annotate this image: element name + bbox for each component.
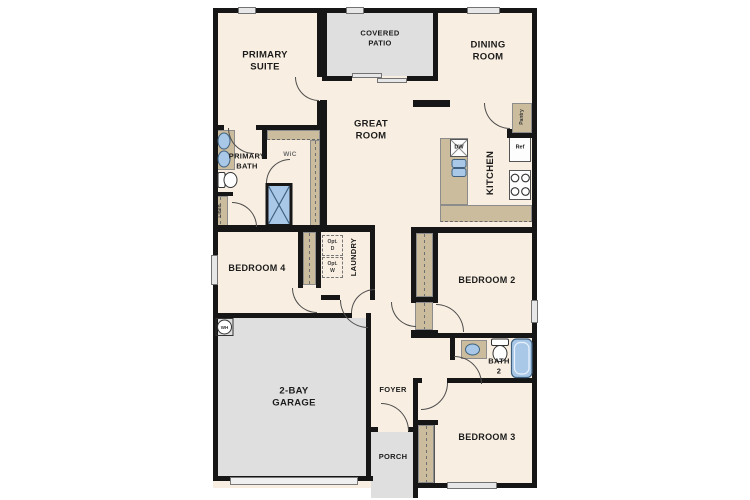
wall [411,227,537,233]
bath2-vanity [461,340,487,359]
room-label-wic: WiC [283,151,296,159]
bedroom4-closet [303,232,316,285]
wic-shelf-side [310,140,320,227]
porch-area [371,432,413,498]
floor-plan: Opt. D Opt. W [0,0,750,500]
range-box [509,170,531,200]
room-label-bedroom-2: BEDROOM 2 [458,275,515,287]
hall-closet [415,302,433,330]
window [531,300,538,323]
optional-dryer-box: Opt. D [322,235,343,256]
bedroom2-closet [416,233,433,297]
wall [213,192,233,196]
wall [213,313,352,318]
wall [213,8,218,481]
wall [321,295,340,300]
room-label-garage: 2-BAY GARAGE [272,386,316,411]
room-label-bedroom-3: BEDROOM 3 [458,432,515,444]
room-label-kitchen: KITCHEN [485,151,497,195]
wall [322,76,352,81]
wall [507,133,532,138]
window [447,482,497,489]
window [467,7,500,14]
bedroom3-closet [418,425,434,483]
room-label-great-room: GREAT ROOM [354,119,388,144]
room-label-dining-room: DINING ROOM [470,40,505,65]
room-label-primary-bath: PRIMARY BATH [229,151,265,171]
sliding-door [377,78,407,83]
room-label-laundry: LAUNDRY [349,238,359,277]
wall [407,76,438,81]
wall [317,13,322,77]
room-label-covered-patio: COVERED PATIO [360,28,399,48]
refrigerator-label: Ref [516,144,525,151]
wall [532,8,537,488]
kitchen-counter [440,205,532,222]
room-label-primary-suite: PRIMARY SUITE [242,50,288,75]
wall [413,100,450,107]
room-label-bedroom-4: BEDROOM 4 [228,263,285,275]
window [346,7,364,14]
wall [213,125,224,130]
wic-shelf-top [267,130,320,140]
wall [413,432,418,498]
garage-door [230,477,358,485]
room-label-porch: PORCH [379,452,408,462]
room-label-pantry: Pantry [519,109,526,125]
wall [322,8,327,81]
room-label-bath-2: BATH 2 [488,356,509,376]
window [238,7,256,14]
wall [366,313,371,481]
wall [433,233,438,303]
wall [298,232,303,288]
room-label-foyer: FOYER [379,385,406,395]
wall [320,100,327,230]
optional-washer-box: Opt. W [322,257,343,278]
room-label-linen: Linen [217,204,224,217]
opt-washer-label: Opt. W [328,261,338,274]
wall [434,425,435,483]
dishwasher-label: DW [454,144,463,151]
window [211,255,218,285]
wall [371,427,378,432]
wall [316,232,321,288]
wall [411,233,416,303]
wall [433,8,438,81]
opt-dryer-label: Opt. D [328,239,338,252]
